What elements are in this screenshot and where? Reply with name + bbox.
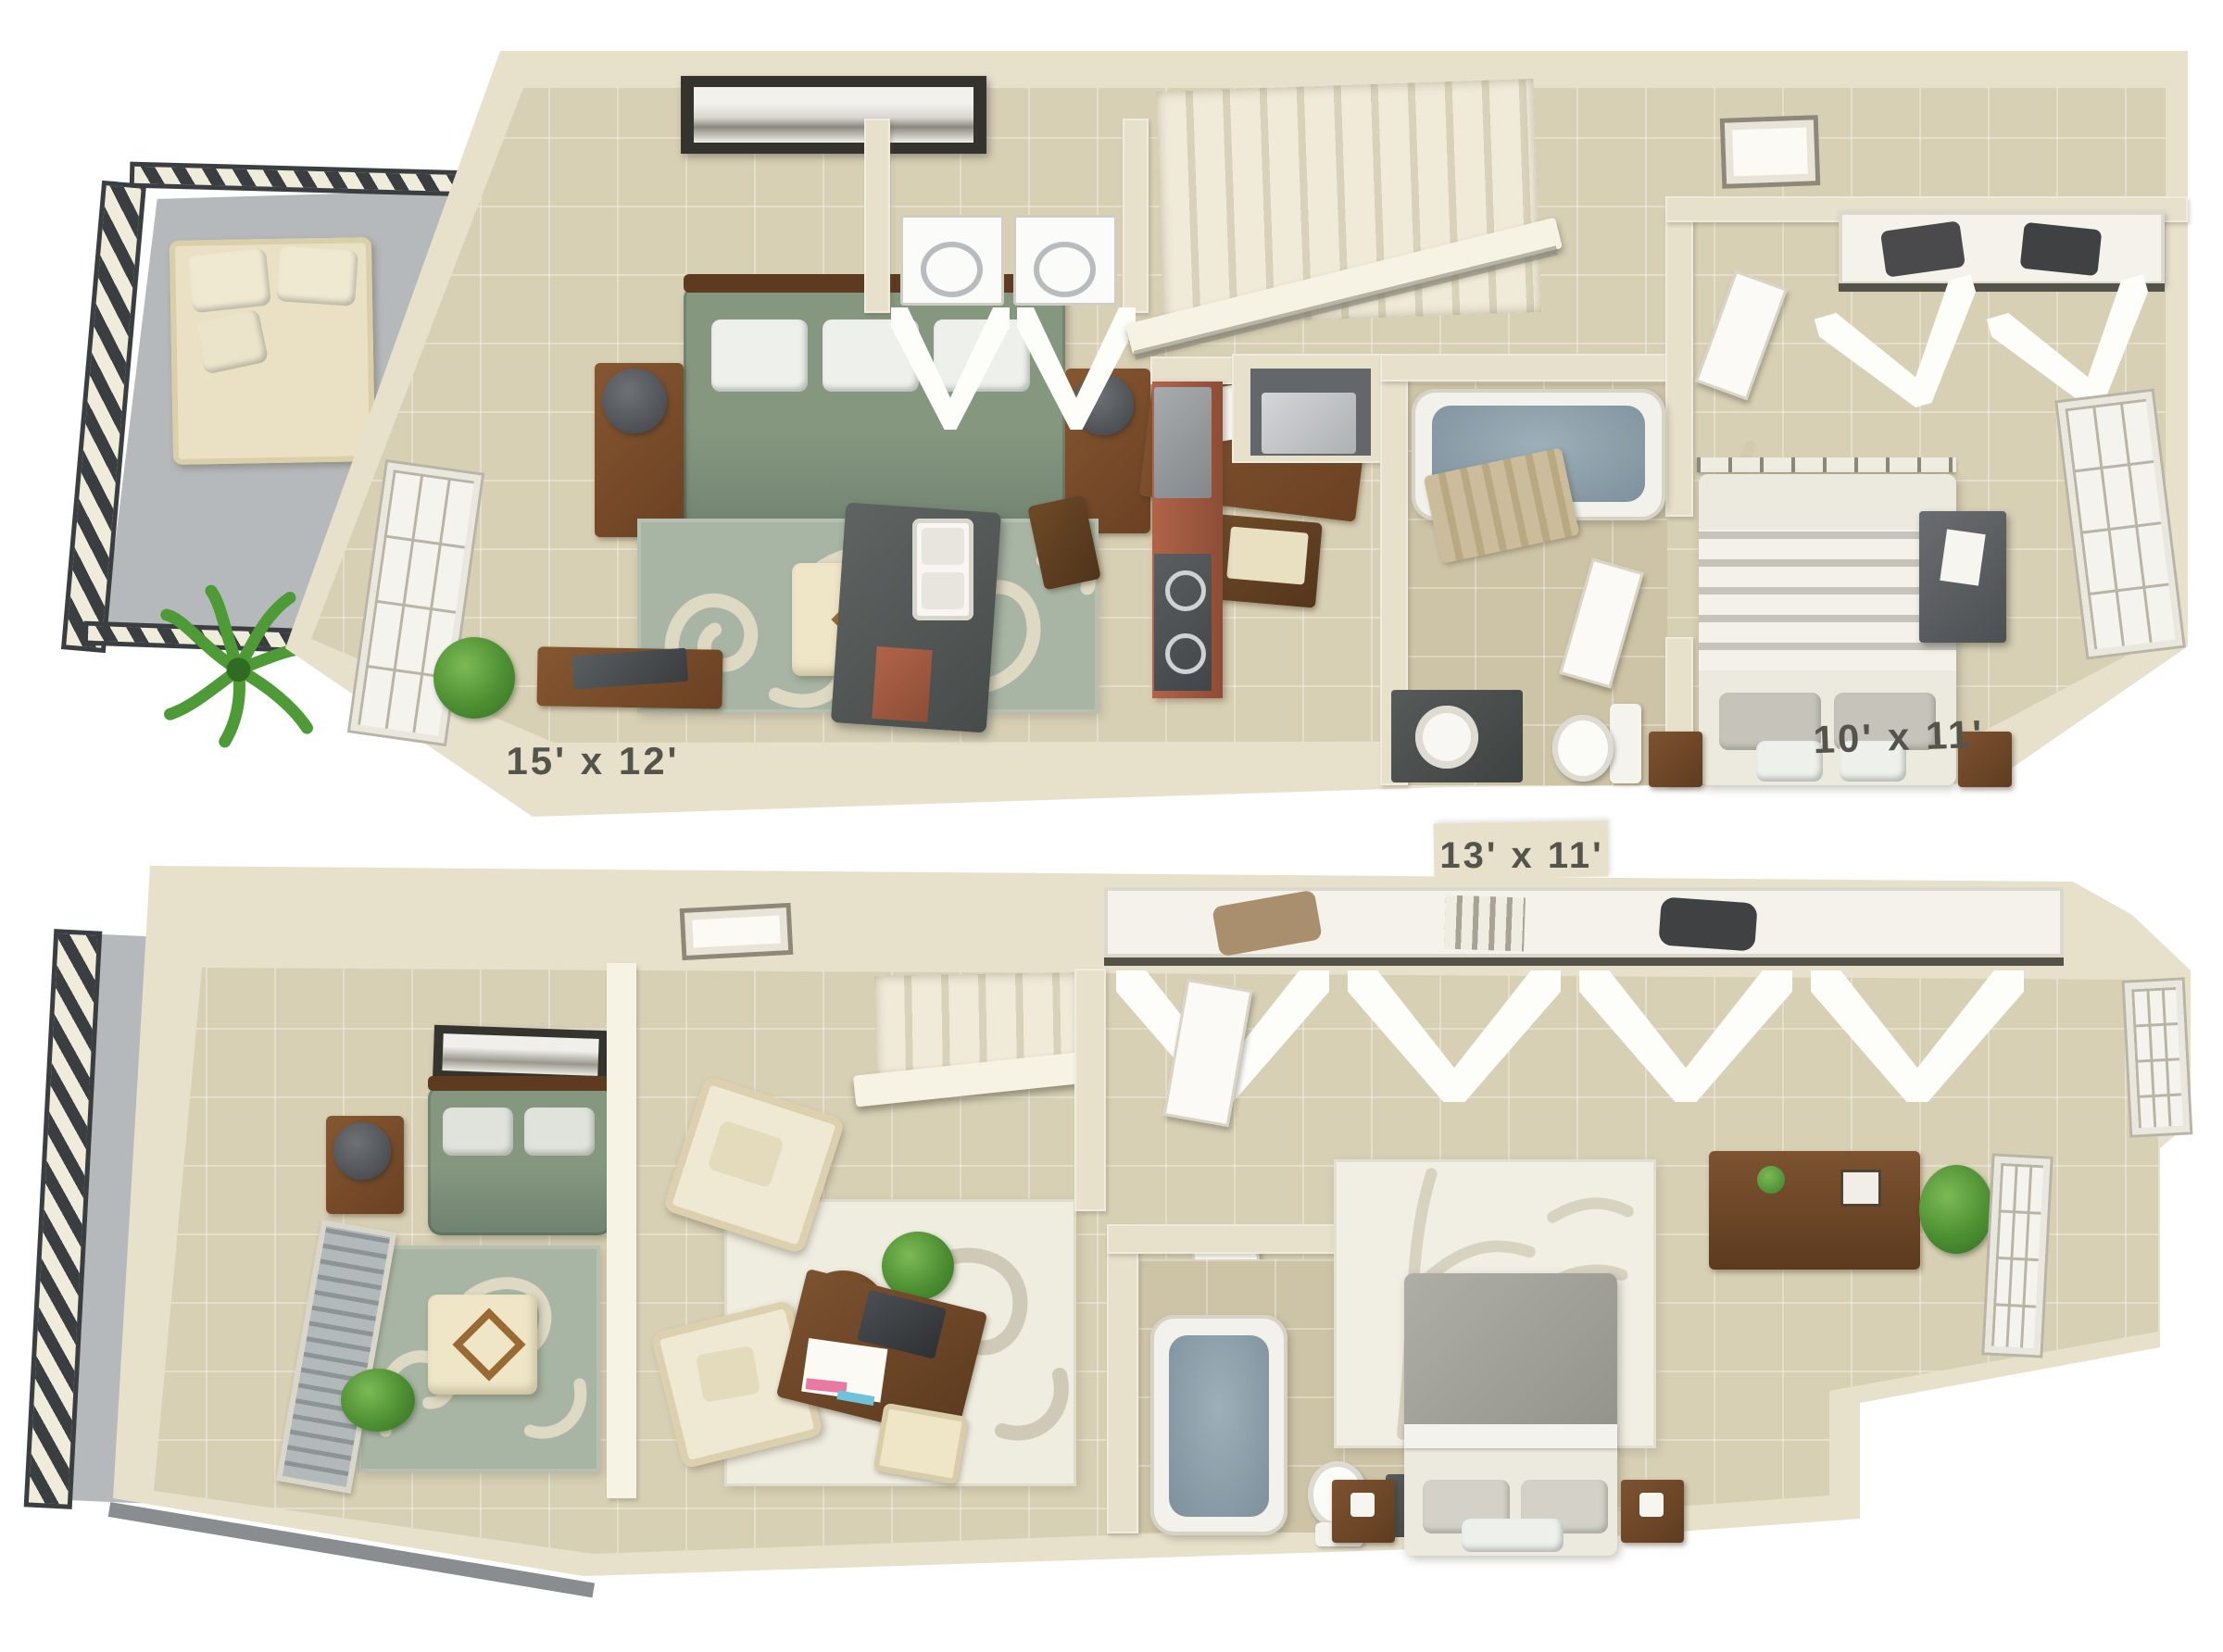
lower-skylight bbox=[680, 903, 794, 960]
lower-dresser bbox=[1709, 1151, 1920, 1270]
armchair-cushion bbox=[707, 1120, 785, 1188]
floor-plan-canvas: 15' x 12' 10' x 11' bbox=[0, 0, 2223, 1652]
lower-floor-plan: 13' x 11' bbox=[0, 0, 2223, 1652]
bedroom-floor-plant bbox=[1919, 1165, 1993, 1254]
lower-ottoman bbox=[428, 1295, 537, 1395]
nightstand-lamp bbox=[1639, 1493, 1664, 1517]
lower-bed-pillow-white bbox=[1462, 1519, 1564, 1552]
lower-right-window bbox=[2125, 980, 2190, 1134]
den-divider-wall bbox=[607, 963, 636, 1498]
lower-wall-art bbox=[442, 1033, 598, 1076]
lower-bath-wall-left bbox=[1107, 1224, 1138, 1533]
lower-nightstand bbox=[1621, 1480, 1684, 1543]
dresser-photo-frame bbox=[1840, 1170, 1881, 1207]
lower-table-lamp bbox=[333, 1122, 391, 1180]
lower-sofa-pillow bbox=[443, 1108, 513, 1156]
lower-bed-gray-blanket bbox=[1404, 1273, 1617, 1429]
lower-nightstand bbox=[1332, 1480, 1395, 1543]
desk-stool bbox=[873, 1403, 968, 1485]
lower-ottoman-tray bbox=[452, 1308, 525, 1381]
closet-duffel-bag bbox=[1212, 890, 1323, 957]
hall-wall bbox=[1074, 969, 1106, 1211]
closet-books bbox=[1444, 895, 1526, 952]
lower-bathtub-water bbox=[1169, 1335, 1269, 1517]
lower-bedroom-window bbox=[1984, 1157, 2050, 1356]
closet-dark-bag bbox=[1658, 896, 1757, 951]
armchair-book bbox=[696, 1345, 760, 1403]
lower-sofa-pillow bbox=[524, 1108, 595, 1156]
lower-sofa-trim bbox=[428, 1076, 611, 1091]
den-plant bbox=[341, 1369, 415, 1432]
lower-bathtub bbox=[1150, 1315, 1287, 1535]
lower-closet-shelf bbox=[1104, 887, 2064, 957]
dresser-plantlet bbox=[1757, 1166, 1785, 1194]
nightstand-lamp bbox=[1350, 1493, 1375, 1517]
lower-bed-sheet-fold bbox=[1404, 1424, 1617, 1448]
lower-closet-rod bbox=[1104, 957, 2064, 966]
dimension-label-lower-bedroom: 13' x 11' bbox=[1415, 835, 1628, 877]
